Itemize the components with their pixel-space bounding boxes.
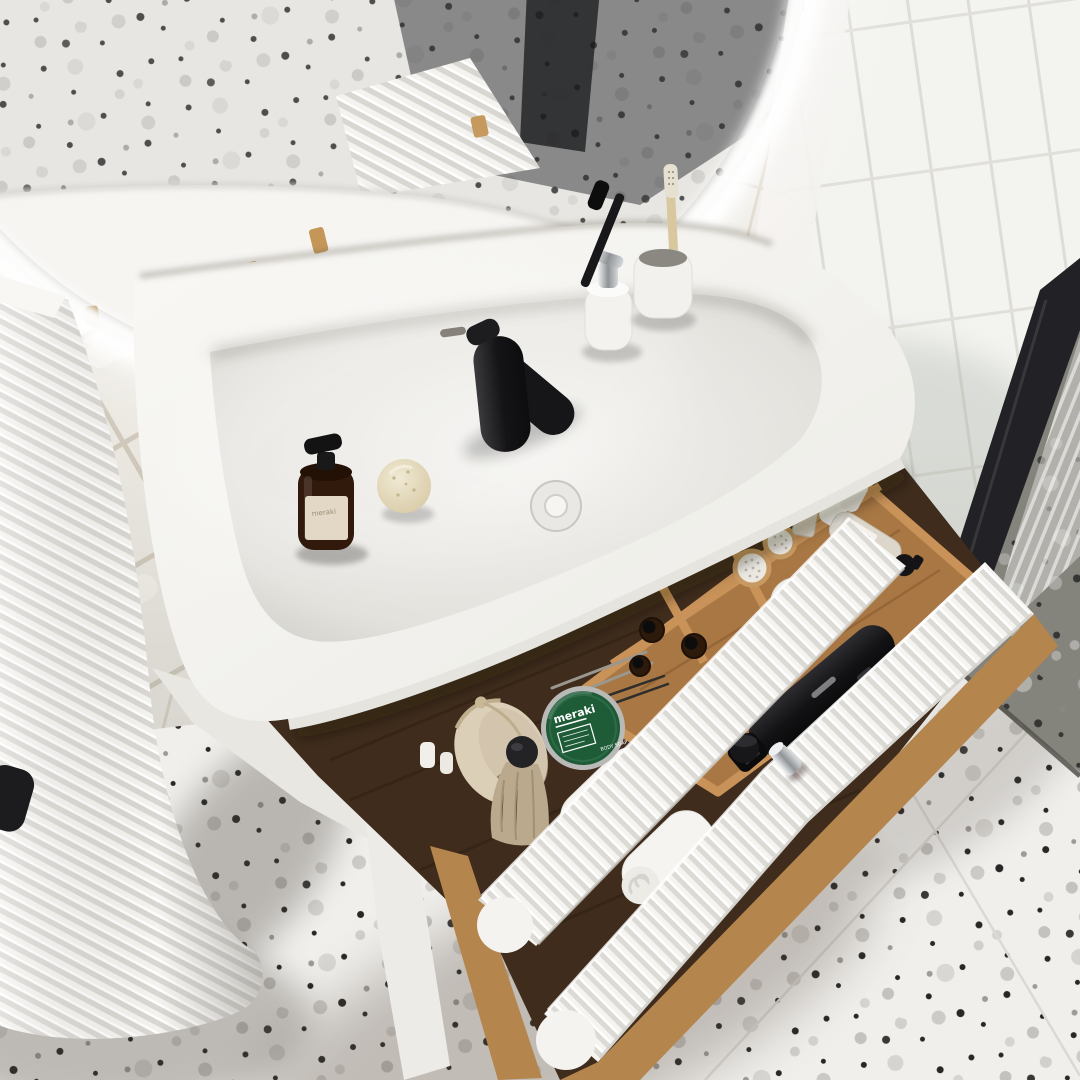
bathroom-scene: mer meraki BODY SOAP	[0, 0, 1080, 1080]
drain	[531, 481, 581, 531]
